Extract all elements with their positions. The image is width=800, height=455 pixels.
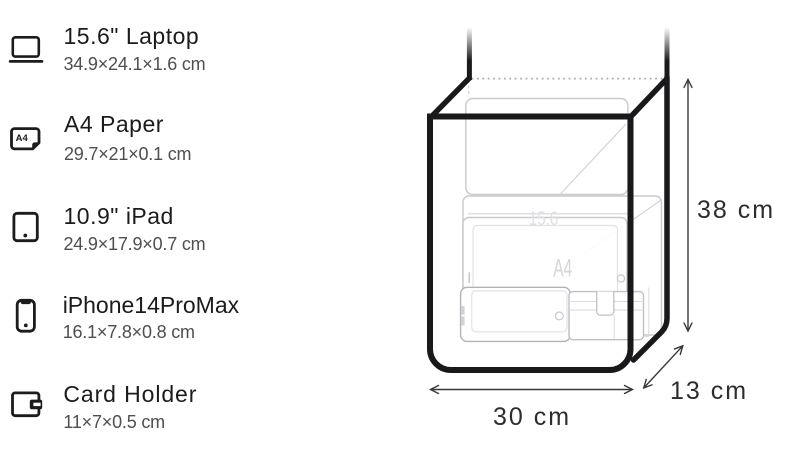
svg-text:A4: A4 [16, 133, 29, 144]
svg-text:A4: A4 [553, 254, 572, 282]
svg-text:15.6: 15.6 [529, 208, 559, 230]
